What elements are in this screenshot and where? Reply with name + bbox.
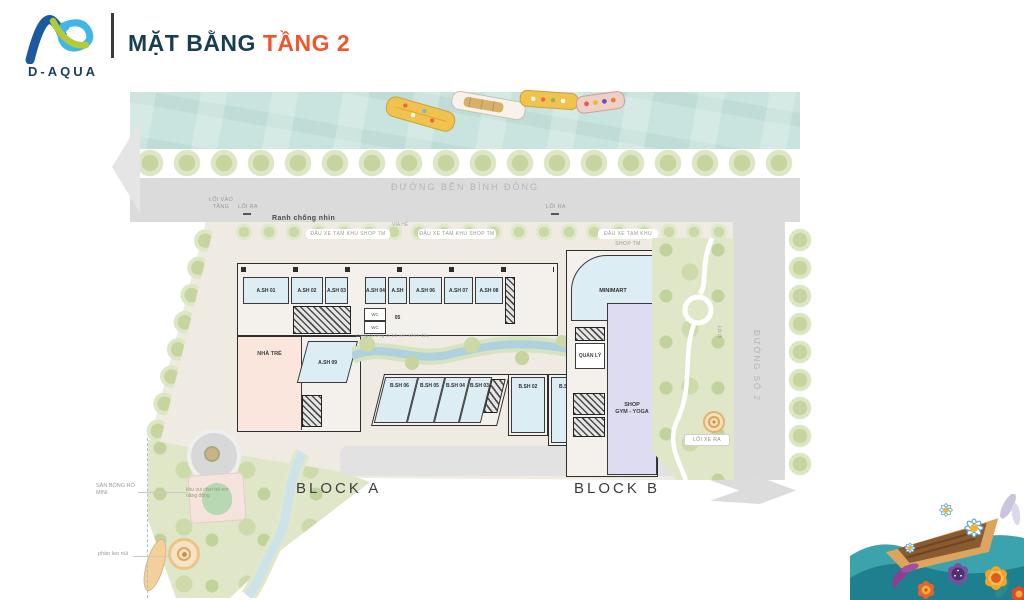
exit-tick-1 bbox=[243, 213, 251, 215]
elevator-core-a bbox=[505, 277, 515, 324]
direction-arrow-right-icon bbox=[710, 477, 796, 504]
caption-block-b: BLOCK B bbox=[574, 480, 660, 497]
core-b-lift-2 bbox=[573, 417, 605, 437]
gym-label-line1: SHOP bbox=[608, 402, 656, 409]
label-loi-ra-1: LỐI RA bbox=[238, 204, 258, 211]
unit-a-sh02: A.SH 02 bbox=[291, 277, 323, 304]
tree-column-right bbox=[787, 226, 814, 478]
stair-core-wing bbox=[302, 395, 322, 427]
label-basketball: SÂN BÓNG RỔ MINI bbox=[96, 483, 136, 496]
unit-a-sh04: A.SH 04 bbox=[365, 277, 386, 304]
block-b-shop-b2: B.SH 02 bbox=[508, 374, 548, 436]
label-parking-2: ĐẬU XE TẠM KHU SHOP TM bbox=[418, 229, 496, 239]
label-climbing: phần leo núi bbox=[98, 551, 138, 558]
stair-core-a bbox=[293, 306, 351, 334]
decor-boat-flowers-icon bbox=[850, 494, 1024, 600]
nursery-room: NHÀ TRẺ bbox=[238, 337, 302, 430]
label-sidewalk: VỈA HÈ bbox=[392, 222, 408, 228]
unit-a-sh06: A.SH 06 bbox=[409, 277, 442, 304]
block-a-wing: NHÀ TRẺ A.SH 09 bbox=[237, 336, 361, 432]
core-b-upper bbox=[575, 327, 605, 341]
label-parking-1: ĐẬU XE TẠM KHU SHOP TM bbox=[306, 229, 390, 239]
caption-block-a: BLOCK A bbox=[296, 480, 381, 497]
label-boundary: Ranh chống nhìn bbox=[272, 215, 335, 222]
unit-a-sh01: A.SH 01 bbox=[243, 277, 289, 304]
page-title-accent: TẦNG 2 bbox=[263, 30, 350, 56]
leader-climbing bbox=[133, 556, 169, 557]
unit-a-sh05: A.SH 05 bbox=[388, 277, 407, 304]
label-canal-walk: Cung đường đi bộ ven kênh đào bbox=[356, 333, 429, 338]
header-divider bbox=[111, 13, 114, 58]
block-a-building: A.SH 01 A.SH 02 A.SH 03 A.SH 04 A.SH 05 … bbox=[237, 263, 558, 336]
label-loi-ra-2: LỐI RA bbox=[546, 204, 566, 211]
exit-tick-2 bbox=[551, 213, 559, 215]
daqua-logo-icon bbox=[20, 6, 108, 64]
leader-basketball bbox=[138, 492, 188, 493]
wc-room-1: WC bbox=[364, 308, 386, 321]
unit-b-sh02: B.SH 02 bbox=[511, 377, 545, 433]
road-label-ben-binh-dong: ĐƯỜNG BẾN BÌNH ĐÔNG bbox=[330, 182, 600, 192]
core-b-lift-1 bbox=[573, 393, 605, 415]
block-b-shop-row: B.SH 06 B.SH 05 B.SH 04 B.SH 03 bbox=[371, 374, 510, 426]
column-grid bbox=[241, 267, 554, 272]
page-title-main: MẶT BẰNG bbox=[128, 30, 256, 56]
block-b-tower: MINIMART SHOP GYM - YOGA QUẢN LÝ bbox=[566, 250, 658, 477]
unit-a-sh08: A.SH 08 bbox=[475, 277, 503, 304]
road-label-duong-so-2: ĐƯỜNG SỐ 2 bbox=[752, 330, 761, 402]
label-loi-di: Lối đi bbox=[716, 326, 722, 338]
label-playground: khu vui chơi trẻ em năng động bbox=[186, 487, 238, 499]
spiral-playpoint bbox=[704, 412, 724, 432]
direction-arrow-left-icon bbox=[112, 118, 140, 216]
unit-a-sh09: A.SH 09 bbox=[297, 341, 358, 383]
label-loi-xe-ra: LỐI XE RA bbox=[684, 434, 730, 446]
unit-a-sh03: A.SH 03 bbox=[325, 277, 348, 304]
climbing-spiral-dot bbox=[182, 552, 187, 557]
management-room: QUẢN LÝ bbox=[575, 343, 605, 369]
road-duong-so-2 bbox=[733, 178, 785, 480]
gym-yoga-room: SHOP GYM - YOGA bbox=[607, 303, 657, 475]
roundabout-island bbox=[204, 446, 220, 462]
tree-row-waterfront bbox=[132, 147, 798, 179]
site-boundary-dashed bbox=[147, 438, 148, 598]
page-title: MẶT BẰNG TẦNG 2 bbox=[128, 30, 350, 57]
brand-wordmark: D-AQUA bbox=[14, 64, 112, 79]
gym-label-line2: GYM - YOGA bbox=[608, 409, 656, 416]
boats-icon bbox=[365, 86, 635, 148]
floorplan-page: D-AQUA MẶT BẰNG TẦNG 2 bbox=[0, 0, 1024, 600]
label-loi-vao-tang: LỐI VÀO TẦNG bbox=[203, 197, 239, 210]
unit-a-sh07: A.SH 07 bbox=[444, 277, 473, 304]
label-parking-3: ĐẬU XE TẠM KHU SHOP TM bbox=[598, 229, 658, 239]
park-stream bbox=[238, 448, 322, 598]
